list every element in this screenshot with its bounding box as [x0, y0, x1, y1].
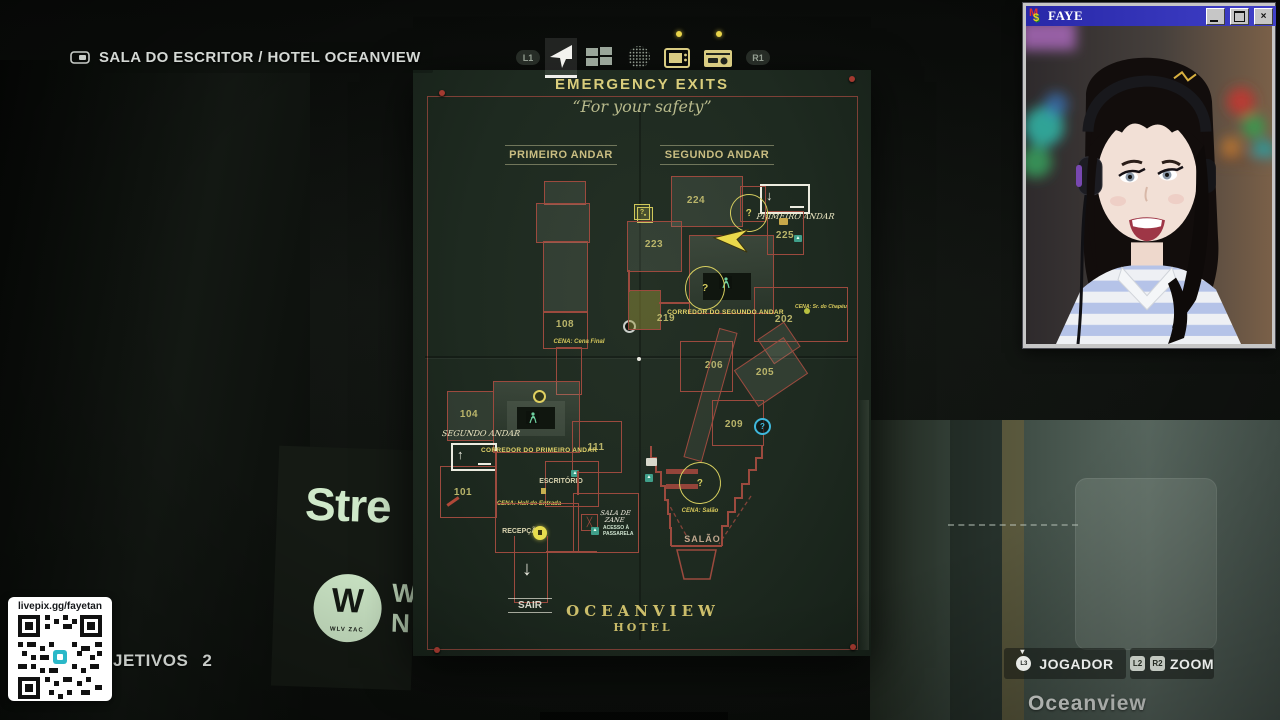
room-number: 101: [448, 487, 478, 498]
map-subtitle: “For your safety”: [413, 97, 871, 116]
map-edge-curl: [857, 400, 869, 650]
maximize-icon: [1234, 11, 1245, 22]
r1-shoulder-hint[interactable]: R1: [746, 50, 770, 65]
reception-glyph: [538, 530, 542, 535]
game-screen: Stre W WLV ZAC W N Oceanview SALA DO ESC…: [0, 0, 1280, 720]
player-button[interactable]: ▾ L3 JOGADOR: [1004, 648, 1126, 679]
lock-icon: [541, 488, 546, 494]
teal-marker-icon: ▲: [794, 235, 802, 242]
scene-label-salao: CENA: Salão: [660, 508, 740, 514]
case-board-icon[interactable]: [586, 47, 612, 67]
breadcrumb-text: SALA DO ESCRITOR / HOTEL OCEANVIEW: [99, 49, 421, 66]
access-walkway-label: ACESSO À PASSARELA: [603, 525, 633, 537]
l3-label: L3: [1020, 661, 1027, 667]
objectives-label: JETIVOS: [113, 651, 188, 670]
minimize-button[interactable]: [1206, 8, 1225, 25]
exit-man-icon: [526, 411, 539, 424]
player-position-arrow: [711, 225, 751, 255]
donation-url: livepix.gg/fayetan: [8, 601, 112, 612]
l3-stick-icon: ▾ L3: [1016, 656, 1031, 671]
wall-glass-pane: [1075, 478, 1217, 650]
r2-badge: R2: [1150, 656, 1165, 671]
office-label: ESCRITÓRIO: [525, 478, 597, 485]
ms-icon-s: $: [1033, 12, 1039, 24]
map-pin: [434, 647, 440, 653]
collectible-glyph: ?: [640, 209, 644, 216]
room-shape: [544, 181, 586, 205]
floor-label-segundo: SEGUNDO ANDAR: [660, 145, 774, 165]
room-number: 108: [548, 319, 582, 330]
question-mark: ?: [701, 282, 708, 294]
minimize-icon: [1210, 20, 1218, 22]
wall-segment: [659, 302, 689, 304]
question-mark: ?: [696, 477, 703, 488]
exit-label: SAIR: [508, 598, 552, 613]
tv-icon[interactable]: [664, 46, 691, 69]
echo-sphere-icon[interactable]: [626, 45, 652, 69]
emergency-exits-map[interactable]: EMERGENCY EXITS “For your safety” PRIMEI…: [413, 70, 871, 656]
scene-label-final: CENA: Cena Final: [533, 339, 625, 345]
radio-notification-dot: [716, 31, 722, 37]
handwritten-sala-de-zane: SALA DE ZANE: [588, 510, 642, 524]
map-pin: [850, 644, 856, 650]
ms-window-icon: M$: [1029, 9, 1044, 23]
wall-segment: [546, 551, 597, 553]
tab-map-navigation[interactable]: [545, 38, 577, 78]
exit-arrow: ↓: [522, 558, 532, 581]
maximize-button[interactable]: [1230, 8, 1249, 25]
question-mark: ?: [745, 207, 753, 219]
stairs-rail: [478, 463, 491, 465]
room-number: 104: [454, 409, 484, 420]
poster-logo-subtext: WLV ZAC: [313, 626, 381, 634]
room-number: 223: [639, 239, 669, 250]
poster-logo-letter: W: [313, 581, 382, 622]
yellow-ring-marker: [533, 390, 546, 403]
blue-question-marker: ?: [754, 418, 771, 435]
fold-dot: [637, 357, 641, 361]
background-table-edge: [540, 712, 728, 720]
ballroom-label: SALÃO: [665, 534, 740, 544]
question-mark: ?: [760, 422, 765, 431]
qr-code: [18, 615, 102, 699]
tab-selected-underline: [545, 75, 577, 78]
room-number: 209: [719, 419, 749, 430]
lunchbox-icon: [779, 218, 788, 225]
room-shape: [543, 241, 588, 313]
corridor-second-label: CORREDOR DO SEGUNDO ANDAR: [653, 309, 798, 316]
hotel-name: OCEANVIEW: [558, 602, 728, 620]
wall-segment: [577, 471, 579, 495]
wall-dashed-line: [948, 524, 1078, 526]
stairs-rail: [790, 206, 804, 208]
wall-stripe-dark: [950, 420, 1002, 720]
streamer-portrait: [1026, 26, 1272, 344]
tv-notification-dot: [676, 31, 682, 37]
webcam-window: M$ FAYE ×: [1022, 2, 1276, 349]
wall-segment: [495, 451, 497, 505]
breadcrumb: SALA DO ESCRITOR / HOTEL OCEANVIEW: [58, 42, 433, 73]
teal-marker-icon: ▲: [645, 474, 653, 482]
navigation-arrow-icon: [549, 44, 574, 70]
room-number: 224: [681, 195, 711, 206]
map-location-icon: [70, 51, 90, 64]
collectible-box-icon: ?: [634, 204, 650, 220]
poster-text: Stre: [304, 477, 391, 534]
zoom-button[interactable]: L2 R2 ZOOM: [1130, 648, 1214, 679]
objectives-counter: JETIVOS2: [113, 651, 212, 671]
room-number: 205: [750, 367, 780, 378]
acesso-line2: PASSARELA: [603, 531, 633, 537]
l2-badge: L2: [1130, 656, 1145, 671]
wall-segment: [628, 270, 630, 292]
radio-icon[interactable]: [704, 45, 732, 69]
stick-caret: ▾: [1020, 649, 1024, 655]
background-poster: Stre W WLV ZAC W N: [271, 446, 419, 691]
scene-dot: [804, 308, 810, 314]
zoom-button-label: ZOOM: [1170, 656, 1214, 672]
player-button-label: JOGADOR: [1039, 656, 1113, 672]
camera-icon: [646, 458, 657, 466]
hotel-type: HOTEL: [558, 621, 728, 634]
objectives-count: 2: [202, 651, 212, 670]
zane-line2: ZANE: [604, 516, 625, 524]
floor-label-primeiro: PRIMEIRO ANDAR: [505, 145, 617, 165]
close-button[interactable]: ×: [1254, 8, 1273, 25]
poster-logo: W WLV ZAC: [312, 573, 382, 643]
map-tabbar: L1 R1: [505, 36, 785, 80]
handwritten-segundo-andar: SEGUNDO ANDAR: [430, 429, 531, 438]
donation-qr-card: livepix.gg/fayetan: [8, 597, 112, 701]
l1-shoulder-hint[interactable]: L1: [516, 50, 540, 65]
room-shape: [536, 203, 590, 243]
wall-oceanview-sign: Oceanview: [1028, 692, 1248, 716]
webcam-video: [1026, 26, 1272, 344]
teal-marker-icon: ▲: [591, 527, 599, 535]
webcam-titlebar[interactable]: M$ FAYE ×: [1026, 6, 1276, 26]
webcam-title: FAYE: [1048, 8, 1201, 24]
